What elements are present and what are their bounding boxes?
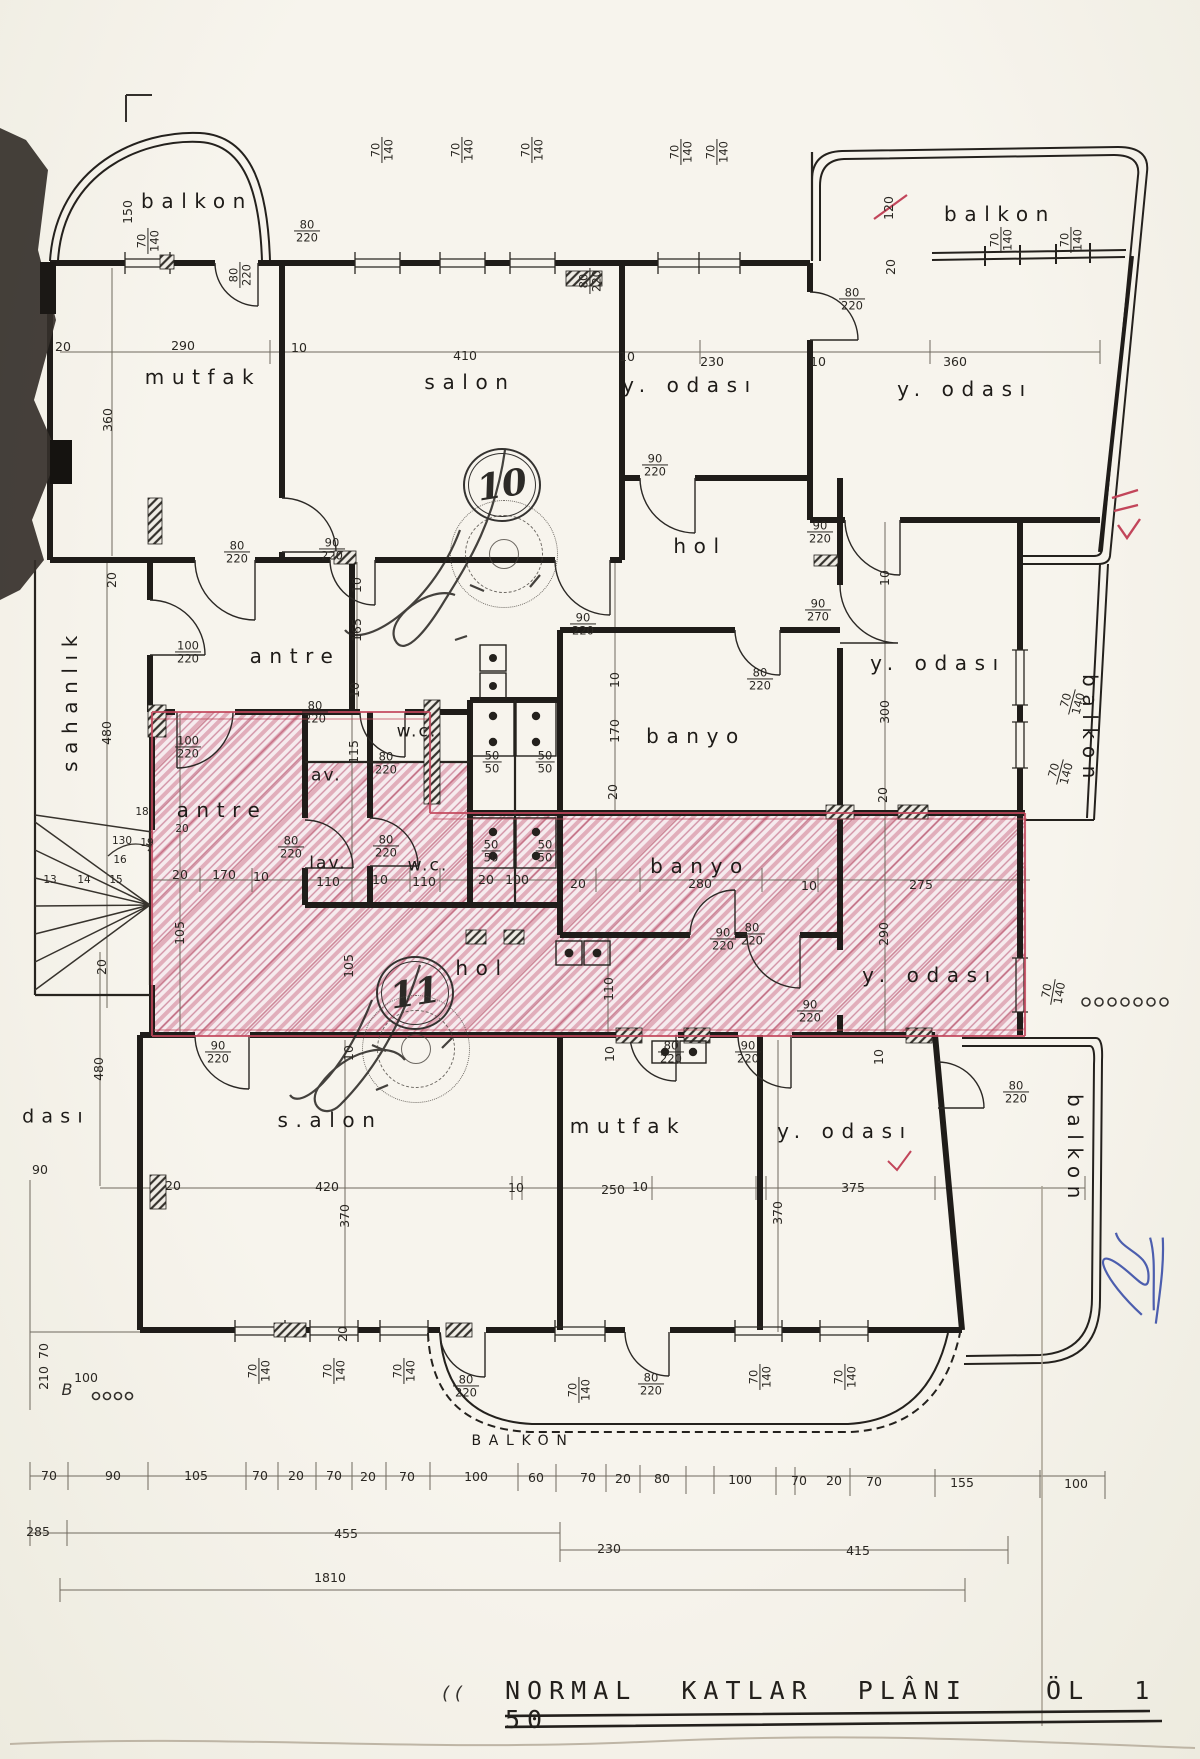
dim-label: 455 <box>334 1528 358 1541</box>
room-label: balkon <box>944 204 1056 224</box>
room-label: lav. <box>304 768 341 785</box>
scanned-floor-plan-page: balkonmutfaksalony. odasıbalkony. odasıh… <box>0 0 1200 1759</box>
dim-label: 80220 <box>294 218 320 243</box>
dim-label: 90220 <box>797 998 823 1023</box>
round-stamp-core <box>489 539 519 569</box>
room-label: y. odası <box>622 375 758 395</box>
dim-label: 480 <box>93 1057 106 1081</box>
mark-label: ( ( <box>442 1685 462 1703</box>
dim-label: 80220 <box>1003 1079 1029 1104</box>
dim-label: 120 <box>883 196 896 220</box>
dim-label: 70 <box>38 1343 51 1359</box>
dim-label: 10 <box>632 1181 648 1194</box>
dim-label: 90220 <box>710 926 736 951</box>
room-label: dası <box>22 1108 90 1127</box>
dim-label: 1810 <box>314 1572 346 1585</box>
dim-label: 20 <box>106 572 119 588</box>
dim-label: 420 <box>315 1181 339 1194</box>
dim-label: 280 <box>688 878 712 891</box>
dim-label: 105 <box>174 921 187 945</box>
room-label: banyo <box>646 726 746 746</box>
dim-label: 10 <box>343 1045 356 1061</box>
dim-label: 90220 <box>642 452 668 477</box>
dim-label: 90270 <box>805 597 831 622</box>
dim-label: 290 <box>171 340 195 353</box>
dim-label: 20 <box>478 874 494 887</box>
dim-label: 10 <box>351 577 364 593</box>
stair-label: 14 <box>77 875 90 886</box>
dim-label: 10 <box>291 342 307 355</box>
room-label: banyo <box>650 856 750 876</box>
dim-label: 110 <box>316 876 340 889</box>
dim-label: 70140 <box>519 137 544 163</box>
stair-label: 19 <box>140 838 153 849</box>
dim-label: 90220 <box>735 1039 761 1064</box>
dim-label: 100220 <box>175 734 201 759</box>
room-label: sahanlık <box>60 628 80 772</box>
plan-labels-layer: balkonmutfaksalony. odasıbalkony. odasıh… <box>0 0 1200 1759</box>
dim-label: 70140 <box>369 137 394 163</box>
dim-label: 80220 <box>658 1039 684 1064</box>
dim-label: 70140 <box>704 139 729 165</box>
dim-label: 10 <box>508 1182 524 1195</box>
room-label: antre <box>177 800 268 820</box>
dim-label: 375 <box>841 1182 865 1195</box>
dim-label: 100 <box>74 1372 98 1385</box>
dim-label: 105 <box>343 954 356 978</box>
dim-label: 80220 <box>227 262 252 288</box>
dim-label: 415 <box>846 1545 870 1558</box>
room-label: balkon <box>141 191 253 211</box>
dim-label: 155 <box>950 1477 974 1490</box>
dim-label: 100 <box>1064 1478 1088 1491</box>
room-label: balkon <box>1065 1094 1085 1206</box>
stair-label: 16 <box>113 855 126 866</box>
dim-label: 5050 <box>483 749 502 774</box>
room-label: lav. <box>309 856 346 873</box>
stair-label: 13 <box>43 875 56 886</box>
room-label: mutfak <box>145 367 261 387</box>
dim-label: 90220 <box>807 519 833 544</box>
dim-label: 275 <box>909 879 933 892</box>
dim-label: 10 <box>609 672 622 688</box>
dim-label: 70140 <box>246 1358 271 1384</box>
dim-label: 70140 <box>391 1358 416 1384</box>
dim-label: 20 <box>360 1471 376 1484</box>
room-label: y. odası <box>777 1121 913 1141</box>
dim-label: 80220 <box>638 1371 664 1396</box>
room-label: w.c. <box>408 858 449 875</box>
mark-label: B <box>62 1382 73 1398</box>
dim-label: 60 <box>528 1472 544 1485</box>
dim-label: 20 <box>885 259 898 275</box>
room-label: w.c. <box>397 724 438 741</box>
dim-label: 70140 <box>747 1364 772 1390</box>
dim-label: 290 <box>878 922 891 946</box>
room-label: BALKON <box>471 1434 574 1448</box>
dim-label: 70140 <box>1038 977 1067 1007</box>
stair-label: 18 <box>135 807 148 818</box>
dim-label: 70140 <box>1058 227 1083 253</box>
dim-label: 70 <box>399 1471 415 1484</box>
dim-label: 300 <box>879 700 892 724</box>
dim-label: 480 <box>101 721 114 745</box>
dim-label: 90220 <box>205 1039 231 1064</box>
dim-label: 70 <box>326 1470 342 1483</box>
dim-label: 100220 <box>175 639 201 664</box>
dim-label: 20 <box>55 341 71 354</box>
dim-label: 90220 <box>319 536 345 561</box>
dim-label: 250 <box>601 1184 625 1197</box>
room-label: y. odası <box>870 653 1006 673</box>
dim-label: 90 <box>105 1470 121 1483</box>
dim-label: 70140 <box>1057 686 1088 718</box>
dim-label: 110 <box>603 977 616 1001</box>
dim-label: 5050 <box>536 749 555 774</box>
dim-label: 70140 <box>668 139 693 165</box>
dim-label: 10 <box>619 351 635 364</box>
dim-label: 80220 <box>577 268 602 294</box>
dim-label: 20 <box>165 1180 181 1193</box>
dim-label: 70 <box>252 1470 268 1483</box>
room-label: antre <box>250 646 341 666</box>
dim-label: 210 <box>38 1366 51 1390</box>
dim-label: 360 <box>943 356 967 369</box>
room-label: y. odası <box>897 379 1033 399</box>
dim-label: 5050 <box>482 838 501 863</box>
dim-label: 285 <box>26 1526 50 1539</box>
dim-label: 70 <box>580 1472 596 1485</box>
dim-label: 10 <box>879 570 892 586</box>
official-round-stamp-upper <box>450 500 558 608</box>
room-label: mutfak <box>570 1116 686 1136</box>
dim-label: 80220 <box>739 921 765 946</box>
dim-label: 20 <box>172 869 188 882</box>
dim-label: 10 <box>372 874 388 887</box>
dim-label: 70 <box>41 1470 57 1483</box>
dim-label: 20 <box>826 1475 842 1488</box>
dim-label: 110 <box>412 876 436 889</box>
dim-label: 80 <box>654 1473 670 1486</box>
dim-label: 150 <box>122 200 135 224</box>
dim-label: 80220 <box>224 539 250 564</box>
dim-label: 90 <box>32 1164 48 1177</box>
dim-label: 370 <box>772 1201 785 1225</box>
dim-label: 80220 <box>278 834 304 859</box>
dim-label: 165 <box>351 618 364 642</box>
dim-label: 20 <box>96 959 109 975</box>
stair-label: 20 <box>175 824 188 835</box>
dim-label: 70140 <box>1045 756 1076 788</box>
dim-label: 90220 <box>570 611 596 636</box>
dim-label: 410 <box>453 350 477 363</box>
dim-label: 80220 <box>839 286 865 311</box>
dim-label: 80220 <box>302 699 328 724</box>
title-block: NORMAL KATLAR PLÂNI ÖL 1 50 <box>505 1676 1165 1734</box>
room-label: salon <box>424 372 515 392</box>
dim-label: 10 <box>873 1049 886 1065</box>
dim-label: 20 <box>288 1470 304 1483</box>
dim-label: 170 <box>609 719 622 743</box>
dim-label: 100 <box>728 1474 752 1487</box>
dim-label: 10 <box>604 1046 617 1062</box>
dim-label: 10 <box>253 871 269 884</box>
dim-label: 70140 <box>988 227 1013 253</box>
dim-label: 230 <box>597 1543 621 1556</box>
dim-label: 105 <box>184 1470 208 1483</box>
dim-label: 80220 <box>373 833 399 858</box>
dim-label: 70140 <box>832 1364 857 1390</box>
dim-label: 170 <box>212 869 236 882</box>
stair-label: 130 <box>112 836 132 847</box>
dim-label: 70140 <box>449 137 474 163</box>
dim-label: 370 <box>339 1204 352 1228</box>
dim-label: 100 <box>464 1471 488 1484</box>
dim-label: 80220 <box>373 750 399 775</box>
dim-label: 20 <box>607 784 620 800</box>
drawing-title: NORMAL KATLAR PLÂNI <box>505 1676 968 1705</box>
room-label: s.alon <box>277 1110 382 1130</box>
dim-label: 20 <box>615 1473 631 1486</box>
dim-label: 70140 <box>566 1377 591 1403</box>
dim-label: 100 <box>505 874 529 887</box>
dim-label: 80220 <box>747 666 773 691</box>
room-label: hol <box>673 536 726 556</box>
dim-label: 80220 <box>453 1373 479 1398</box>
dim-label: 10 <box>801 880 817 893</box>
stair-label: 15 <box>109 875 122 886</box>
dim-label: 70140 <box>135 228 160 254</box>
dim-label: 360 <box>102 408 115 432</box>
dim-label: 70140 <box>321 1358 346 1384</box>
dim-label: 5050 <box>536 838 555 863</box>
room-label: y. odası <box>862 965 998 985</box>
dim-label: 115 <box>348 740 361 764</box>
dim-label: 10 <box>349 682 362 698</box>
dim-label: 20 <box>877 787 890 803</box>
dim-label: 20 <box>570 878 586 891</box>
dim-label: 230 <box>700 356 724 369</box>
dim-label: 20 <box>337 1326 350 1342</box>
round-stamp-core <box>401 1034 431 1064</box>
official-round-stamp-lower <box>362 995 470 1103</box>
room-label: hol <box>455 958 508 978</box>
dim-label: 70 <box>791 1475 807 1488</box>
dim-label: 70 <box>866 1476 882 1489</box>
dim-label: 10 <box>810 356 826 369</box>
